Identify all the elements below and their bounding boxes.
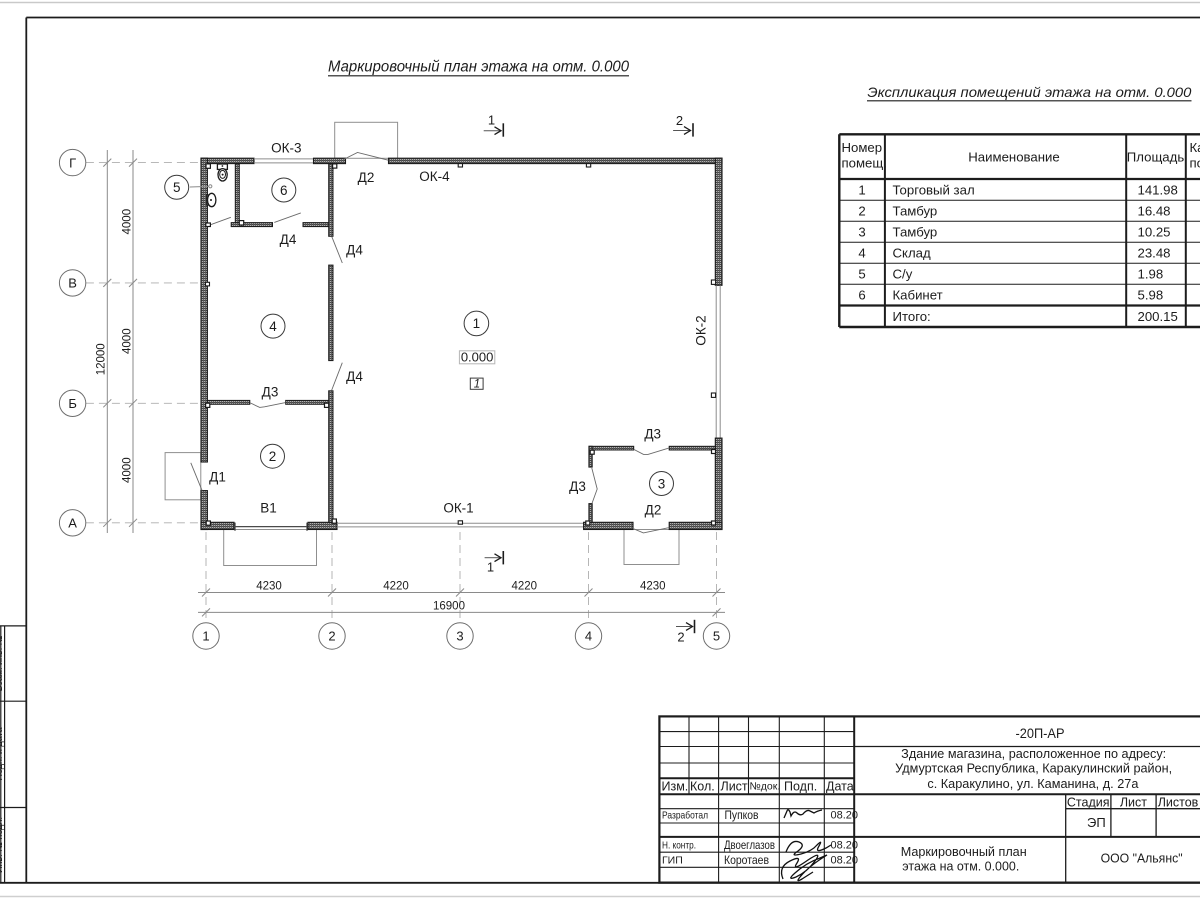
svg-text:№док.: №док. — [750, 781, 781, 793]
svg-text:Подп.: Подп. — [784, 780, 817, 794]
svg-text:3: 3 — [858, 224, 865, 239]
svg-text:1: 1 — [474, 379, 480, 391]
svg-text:16.48: 16.48 — [1138, 203, 1171, 218]
svg-text:3: 3 — [456, 629, 463, 644]
svg-text:Тамбур: Тамбур — [893, 224, 938, 239]
svg-text:5: 5 — [713, 629, 720, 644]
svg-text:Д4: Д4 — [280, 232, 297, 247]
svg-text:4000: 4000 — [122, 209, 134, 235]
svg-text:Кол.: Кол. — [690, 780, 715, 794]
svg-text:В: В — [68, 276, 77, 291]
svg-text:ГИП: ГИП — [662, 855, 683, 867]
svg-text:Изм.: Изм. — [662, 780, 689, 794]
svg-text:08.20: 08.20 — [831, 840, 859, 852]
svg-text:Подп. и дата: Подп. и дата — [0, 727, 4, 780]
svg-text:Д2: Д2 — [358, 170, 375, 185]
svg-text:ОК-3: ОК-3 — [271, 140, 301, 155]
svg-text:с. Каракулино, ул. Каманина, д: с. Каракулино, ул. Каманина, д. 27а — [927, 777, 1138, 791]
svg-text:2: 2 — [677, 630, 684, 645]
svg-text:С/у: С/у — [893, 266, 913, 281]
svg-text:12000: 12000 — [96, 343, 108, 375]
svg-text:4: 4 — [269, 319, 277, 334]
svg-text:Номер: Номер — [842, 140, 883, 155]
svg-text:0.000: 0.000 — [461, 350, 494, 365]
svg-text:2: 2 — [676, 113, 683, 128]
svg-text:Торговый зал: Торговый зал — [893, 182, 975, 197]
svg-text:4220: 4220 — [512, 581, 538, 593]
svg-text:Пупков: Пупков — [725, 808, 759, 822]
svg-text:2: 2 — [328, 629, 335, 644]
svg-text:Инв. № подл.: Инв. № подл. — [0, 817, 4, 873]
svg-text:ОК-1: ОК-1 — [443, 501, 473, 516]
svg-text:А: А — [68, 516, 77, 531]
svg-text:1: 1 — [487, 560, 494, 575]
svg-text:1: 1 — [473, 316, 481, 331]
svg-text:Коротаев: Коротаев — [724, 853, 769, 867]
svg-text:помещений: помещений — [1190, 156, 1200, 171]
svg-text:Кабинет: Кабинет — [893, 288, 943, 303]
svg-text:Удмуртская Республика, Каракул: Удмуртская Республика, Каракулинский рай… — [895, 762, 1172, 776]
svg-text:Площадь: Площадь — [1127, 150, 1185, 165]
svg-text:6: 6 — [280, 183, 288, 198]
svg-text:1: 1 — [488, 113, 495, 128]
svg-text:Г: Г — [69, 155, 76, 170]
svg-text:Б: Б — [68, 396, 77, 411]
svg-text:Д4: Д4 — [346, 369, 363, 384]
svg-text:Итого:: Итого: — [893, 309, 931, 324]
svg-text:этажа на отм. 0.000.: этажа на отм. 0.000. — [902, 858, 1019, 873]
svg-text:4230: 4230 — [640, 581, 666, 593]
svg-text:Маркировочный план этажа на от: Маркировочный план этажа на отм. 0.000 — [328, 59, 629, 76]
svg-text:ОК-4: ОК-4 — [419, 169, 450, 184]
svg-text:Разработал: Разработал — [662, 810, 708, 822]
svg-text:Двоеглазов: Двоеглазов — [724, 838, 775, 852]
svg-text:Д2: Д2 — [645, 503, 662, 518]
svg-text:Тамбур: Тамбур — [893, 203, 938, 218]
svg-text:3: 3 — [658, 476, 666, 491]
svg-text:Категория: Категория — [1190, 140, 1200, 155]
svg-text:Д3: Д3 — [262, 385, 279, 400]
svg-text:Д3: Д3 — [644, 427, 661, 442]
svg-text:Н. контр.: Н. контр. — [662, 840, 696, 852]
svg-text:Маркировочный план: Маркировочный план — [901, 844, 1027, 859]
svg-text:ООО "Альянс": ООО "Альянс" — [1101, 850, 1183, 865]
svg-text:2: 2 — [858, 203, 865, 218]
svg-text:В1: В1 — [260, 501, 277, 516]
svg-text:-20П-АР: -20П-АР — [1016, 726, 1065, 741]
svg-text:Лист: Лист — [721, 780, 748, 794]
svg-text:1.98: 1.98 — [1138, 266, 1164, 281]
svg-text:16900: 16900 — [433, 600, 465, 612]
svg-text:4230: 4230 — [256, 581, 282, 593]
svg-text:5: 5 — [173, 180, 181, 195]
svg-text:Дата: Дата — [826, 780, 854, 794]
svg-text:помещ.: помещ. — [842, 156, 887, 171]
svg-text:4220: 4220 — [383, 581, 409, 593]
svg-text:4: 4 — [858, 245, 865, 260]
svg-text:1: 1 — [858, 182, 865, 197]
svg-text:08.20: 08.20 — [831, 855, 859, 867]
svg-text:200.15: 200.15 — [1138, 309, 1178, 324]
svg-text:23.48: 23.48 — [1138, 245, 1171, 260]
svg-text:ЭП: ЭП — [1087, 815, 1106, 830]
svg-text:Здание магазина, расположенное: Здание магазина, расположенное по адресу… — [901, 747, 1166, 761]
svg-text:10.25: 10.25 — [1138, 224, 1171, 239]
svg-text:Склад: Склад — [893, 245, 931, 260]
svg-text:4000: 4000 — [122, 328, 134, 354]
svg-text:Д1: Д1 — [209, 469, 226, 484]
svg-text:6: 6 — [858, 288, 865, 303]
svg-text:Д3: Д3 — [569, 479, 586, 494]
svg-text:ОК-2: ОК-2 — [694, 315, 709, 345]
svg-text:Стадия: Стадия — [1067, 796, 1110, 810]
svg-text:Наименование: Наименование — [968, 150, 1059, 165]
svg-text:5: 5 — [858, 266, 865, 281]
svg-text:4000: 4000 — [122, 457, 134, 483]
svg-text:Д4: Д4 — [346, 242, 363, 257]
svg-text:Листов: Листов — [1158, 796, 1199, 810]
svg-text:141.98: 141.98 — [1138, 182, 1178, 197]
svg-text:2: 2 — [269, 449, 277, 464]
svg-text:Взам. инв. №: Взам. инв. № — [0, 635, 4, 691]
svg-text:1: 1 — [202, 629, 209, 644]
svg-text:08.20: 08.20 — [831, 810, 859, 822]
svg-text:5.98: 5.98 — [1138, 288, 1164, 303]
svg-text:Лист: Лист — [1120, 796, 1147, 810]
svg-text:Экспликация помещений этажа на: Экспликация помещений этажа на отм. 0.00… — [867, 84, 1191, 100]
svg-text:4: 4 — [585, 629, 592, 644]
